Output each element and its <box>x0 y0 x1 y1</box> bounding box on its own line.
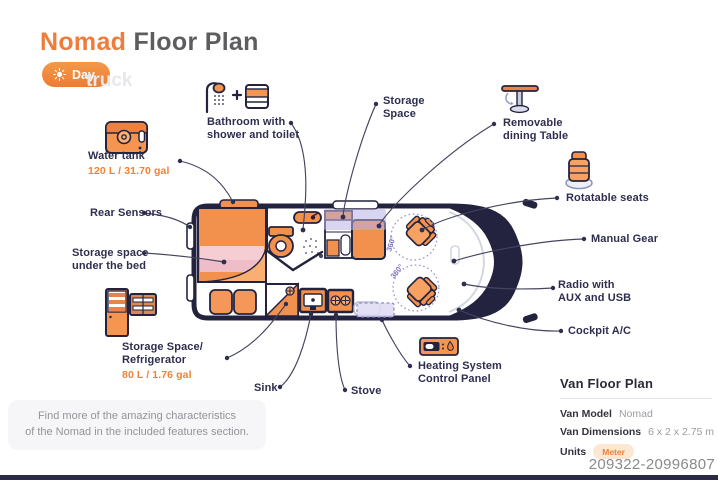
van-info-panel: Van Floor Plan Van Model Nomad Van Dimen… <box>560 376 712 465</box>
label-radio: Radio with AUX and USB <box>558 279 631 305</box>
toilet <box>269 227 293 257</box>
side-mirrors <box>522 198 539 324</box>
label-heating-system: Heating System Control Panel <box>418 360 502 386</box>
roof-vent <box>333 201 378 209</box>
dining-table-icon <box>499 84 541 114</box>
overhead-storage-highlight <box>324 209 386 230</box>
rotatable-seat-icon <box>563 151 595 191</box>
stock-watermark-word: truck <box>86 70 132 92</box>
page-title: Nomad Floor Plan <box>40 28 259 57</box>
note-line-2: of the Nomad in the included features se… <box>25 425 249 441</box>
refrigerator-capacity: 80 L / 1.76 gal <box>122 369 203 381</box>
stove-unit <box>328 290 353 312</box>
heating-panel-icon <box>419 337 459 356</box>
sun-icon <box>53 68 66 81</box>
label-rotatable-seats: Rotatable seats <box>566 192 649 205</box>
info-row-dimensions: Van Dimensions 6 x 2 x 2.75 m <box>560 426 712 438</box>
heating-panel-location <box>357 303 394 317</box>
bottom-bar <box>0 475 718 480</box>
refrigerator-icon <box>100 287 162 339</box>
label-storage-under-bed: Storage space under the bed <box>72 247 149 273</box>
label-storage-space: Storage Space <box>383 95 425 121</box>
shower-icon <box>207 83 225 112</box>
label-stove: Stove <box>351 385 381 398</box>
label-rear-sensors: Rear Sensors <box>90 207 162 220</box>
floor-plan-infographic: Nomad Floor Plan Day truck <box>0 0 718 480</box>
label-storage-refrigerator: Storage Space/ Refrigerator 80 L / 1.76 … <box>122 341 203 381</box>
bathroom-sink <box>294 212 321 223</box>
label-bathroom: Bathroom with shower and toilet <box>207 116 299 142</box>
title-rest: Floor Plan <box>126 28 258 56</box>
kitchen-sink-unit <box>300 289 326 312</box>
label-sink: Sink <box>254 382 278 395</box>
kitchen-corner-unit <box>266 284 298 316</box>
bathroom-icons <box>203 80 271 114</box>
label-manual-gear: Manual Gear <box>591 233 658 246</box>
bed <box>198 208 266 282</box>
toilet-icon <box>246 85 268 108</box>
note-line-1: Find more of the amazing characteristics <box>38 409 236 425</box>
water-tank-capacity: 120 L / 31.70 gal <box>88 165 169 177</box>
label-dining-table: Removable dining Table <box>503 117 568 143</box>
plus-icon <box>233 91 241 99</box>
title-brand: Nomad <box>40 28 126 56</box>
info-row-model: Van Model Nomad <box>560 408 712 420</box>
info-panel-title: Van Floor Plan <box>560 376 712 391</box>
note-box: Find more of the amazing characteristics… <box>8 400 266 450</box>
label-cockpit-ac: Cockpit A/C <box>568 325 631 338</box>
info-panel-divider <box>560 398 712 399</box>
label-water-tank: Water tank 120 L / 31.70 gal <box>88 150 169 177</box>
stock-watermark-id: 209322-20996807 <box>589 456 715 473</box>
